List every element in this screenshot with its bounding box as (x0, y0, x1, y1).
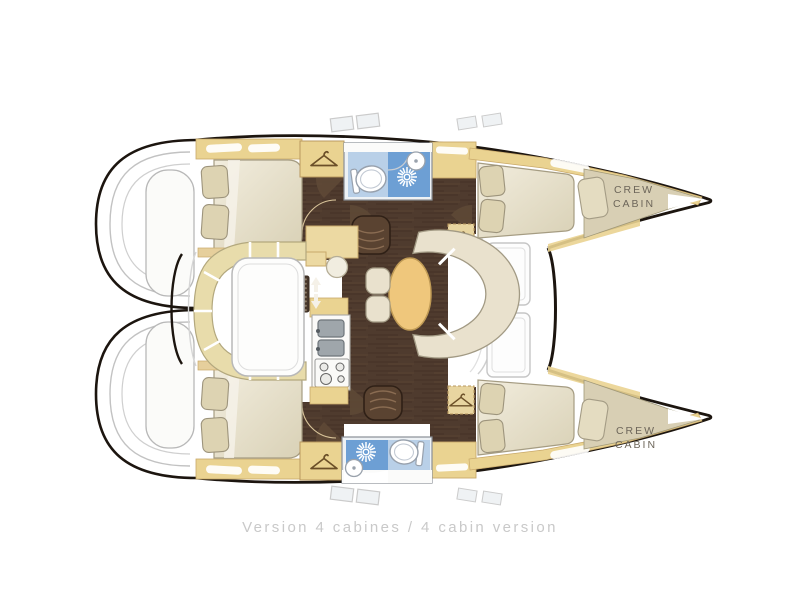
port-forward-cabin (478, 163, 574, 238)
cockpit-table (232, 258, 304, 376)
catamaran-floorplan-diagram: CREW CABIN CREW CABIN Version 4 cabines … (0, 0, 800, 600)
pillow (478, 383, 505, 415)
starboard-forward-cabin (478, 380, 574, 455)
starboard-transom-steps (96, 310, 197, 478)
cockpit (194, 242, 306, 380)
crew-cabin-bottom: CREW CABIN (577, 380, 704, 451)
pillow (577, 176, 609, 220)
deck-strip-aft-port (196, 139, 302, 159)
pillow (201, 165, 229, 199)
pillow (201, 417, 229, 453)
port-wardrobe (300, 141, 344, 177)
floorplan-canvas: CREW CABIN CREW CABIN Version 4 cabines … (0, 0, 800, 600)
port-bathroom (344, 143, 432, 200)
arrow-up-icon (311, 277, 321, 292)
version-caption: Version 4 cabines / 4 cabin version (242, 519, 558, 536)
deck-strip-aft-starboard (196, 459, 302, 479)
pillow (201, 377, 229, 411)
stove-icon (315, 359, 349, 387)
dinghy-outline (146, 322, 194, 448)
salon-stool (366, 296, 390, 322)
pillow (577, 398, 609, 442)
hanging-locker-dashed-bottom (448, 386, 474, 414)
starboard-bathroom (342, 437, 432, 483)
pillow (478, 165, 505, 197)
crew-cabin-label-line1: CREW (614, 184, 654, 196)
pillow (478, 199, 505, 233)
galley (310, 298, 350, 404)
port-transom-steps (96, 140, 197, 308)
salon-stool (366, 268, 390, 294)
crew-cabin-label-line2: CABIN (613, 198, 655, 210)
hull-window (248, 143, 280, 152)
starboard-wardrobe (300, 442, 344, 480)
forward-crossbeam (548, 248, 556, 370)
pillow (201, 204, 229, 240)
crew-cabin-label-line1: CREW (616, 425, 656, 437)
dinghy-outline (146, 170, 194, 296)
crew-cabin-label-line2: CABIN (615, 439, 657, 451)
pillow (478, 419, 505, 453)
salon-table (389, 258, 431, 330)
sink-icon (407, 152, 425, 170)
nav-seat (327, 257, 348, 278)
companionway-steps-starboard (364, 386, 402, 420)
hull-window (248, 465, 280, 474)
sink-icon (346, 460, 363, 477)
port-forward-locker (430, 142, 476, 178)
